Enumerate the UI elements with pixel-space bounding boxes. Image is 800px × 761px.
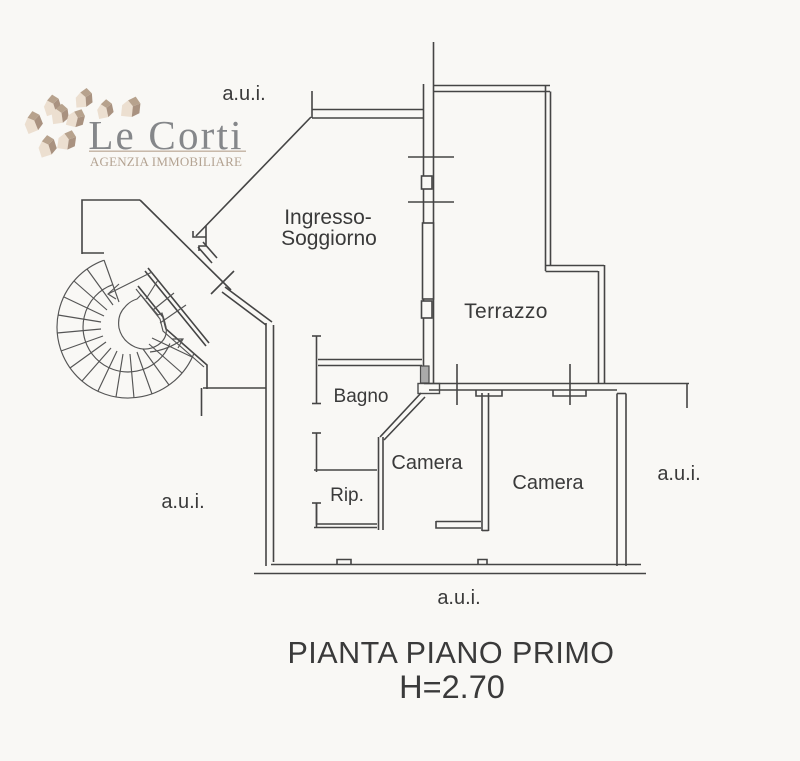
svg-text:Terrazzo: Terrazzo: [464, 300, 548, 323]
svg-text:Camera: Camera: [512, 472, 584, 494]
svg-text:PIANTA PIANO PRIMO: PIANTA PIANO PRIMO: [287, 636, 614, 670]
svg-text:Bagno: Bagno: [334, 386, 389, 407]
svg-text:a.u.i.: a.u.i.: [437, 587, 480, 609]
svg-text:AGENZIA IMMOBILIARE: AGENZIA IMMOBILIARE: [90, 154, 242, 169]
svg-text:Camera: Camera: [391, 452, 463, 474]
svg-text:a.u.i.: a.u.i.: [161, 491, 204, 513]
svg-text:Rip.: Rip.: [330, 485, 364, 506]
svg-text:a.u.i.: a.u.i.: [222, 83, 265, 105]
svg-text:Ingresso-: Ingresso-: [284, 206, 372, 229]
svg-text:a.u.i.: a.u.i.: [657, 463, 700, 485]
svg-text:Soggiorno: Soggiorno: [281, 227, 377, 250]
svg-text:H=2.70: H=2.70: [399, 669, 505, 705]
